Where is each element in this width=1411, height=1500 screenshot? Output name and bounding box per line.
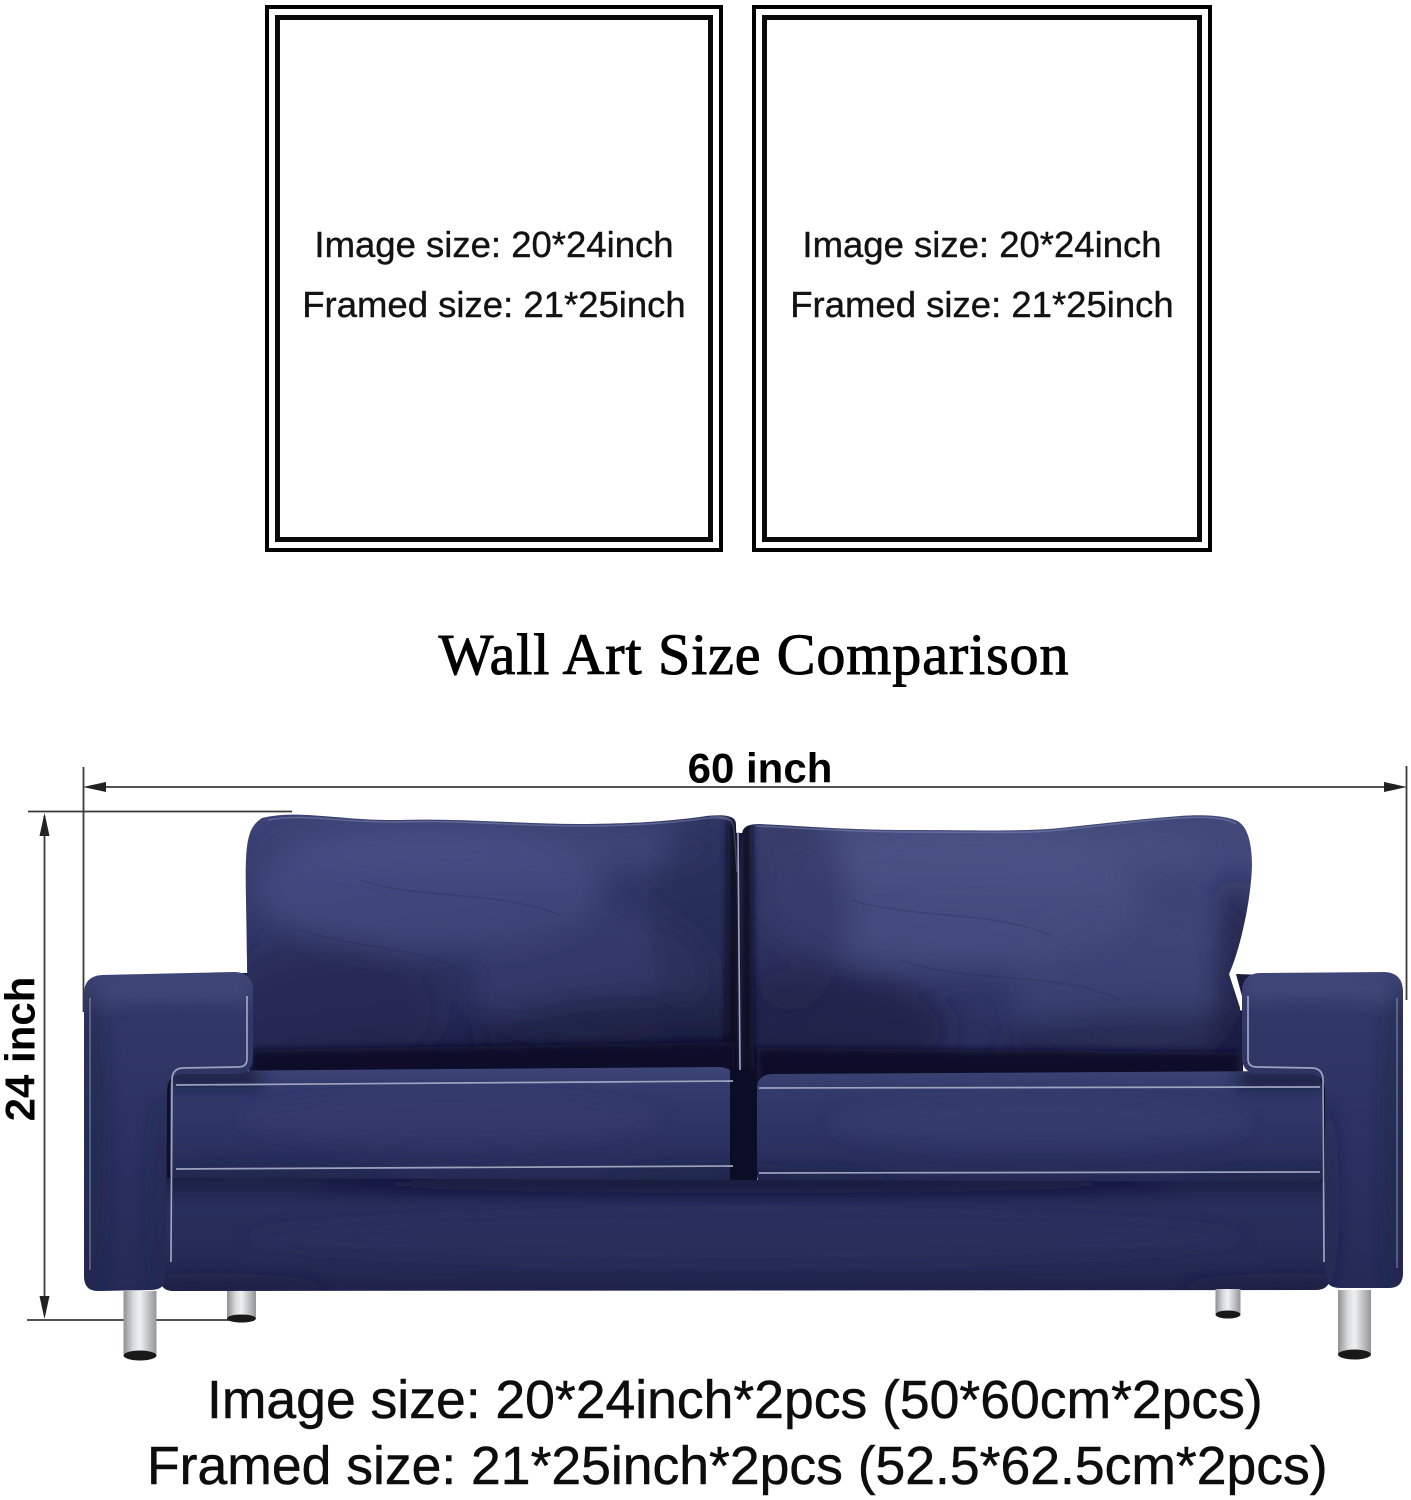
svg-text:24 inch: 24 inch	[0, 977, 44, 1122]
svg-text:60 inch: 60 inch	[688, 745, 833, 792]
